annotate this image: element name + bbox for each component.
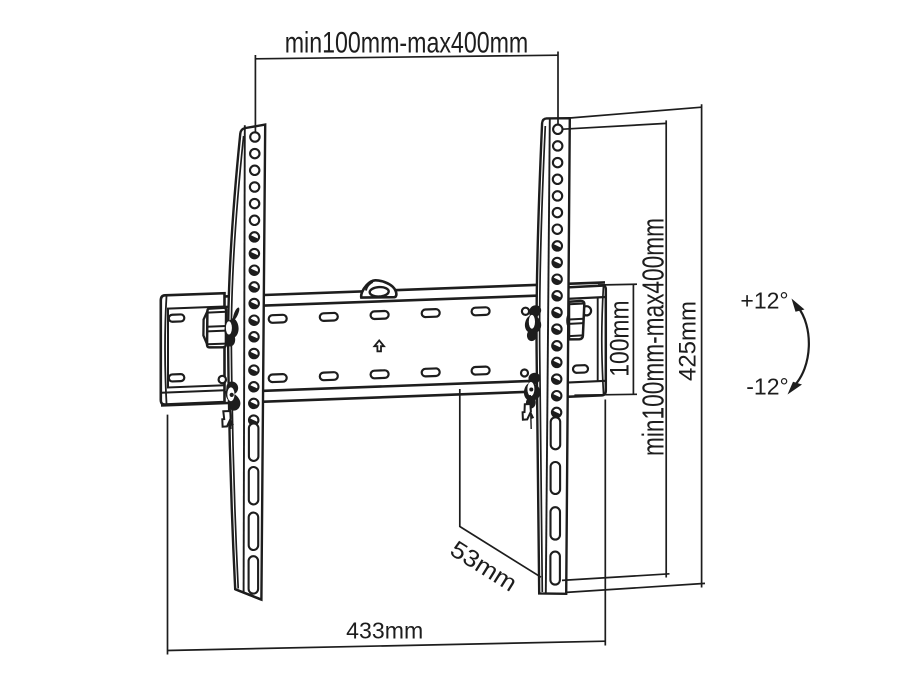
svg-text:min100mm-max400mm: min100mm-max400mm xyxy=(285,27,529,60)
svg-text:433mm: 433mm xyxy=(346,618,423,644)
svg-text:+12°: +12° xyxy=(740,288,788,314)
svg-text:100mm: 100mm xyxy=(605,300,635,376)
svg-text:-12°: -12° xyxy=(746,374,788,400)
svg-text:min100mm-max400mm: min100mm-max400mm xyxy=(637,218,671,456)
svg-text:425mm: 425mm xyxy=(675,301,702,381)
